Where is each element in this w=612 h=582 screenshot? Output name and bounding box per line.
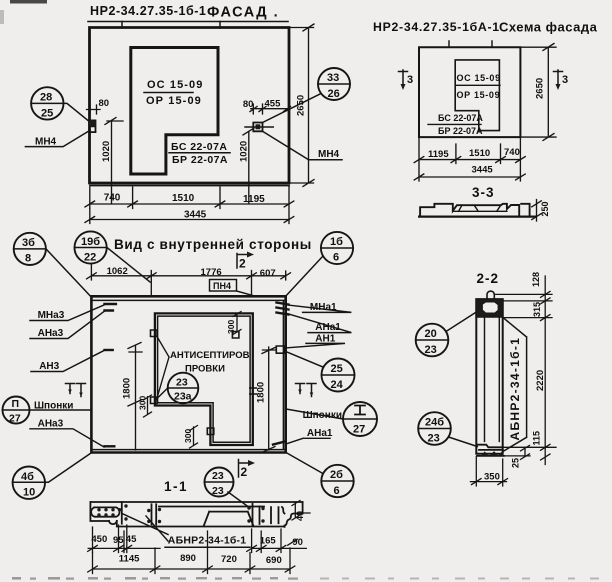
svg-text:6: 6 — [333, 252, 339, 264]
svg-text:23а: 23а — [174, 391, 192, 403]
svg-text:28: 28 — [40, 92, 52, 104]
svg-text:1020: 1020 — [239, 141, 250, 162]
svg-text:ОС 15-09: ОС 15-09 — [457, 73, 501, 83]
svg-text:24б: 24б — [425, 417, 444, 429]
svg-text:Вид с внутренней стороны: Вид с внутренней стороны — [114, 237, 312, 252]
svg-text:45: 45 — [126, 534, 137, 545]
svg-text:3б: 3б — [22, 237, 35, 249]
svg-text:350: 350 — [484, 472, 500, 483]
svg-text:10: 10 — [23, 487, 35, 499]
svg-text:27: 27 — [9, 413, 21, 425]
svg-text:607: 607 — [260, 268, 276, 279]
svg-text:19б: 19б — [81, 236, 100, 248]
svg-text:740: 740 — [504, 147, 520, 158]
svg-text:80: 80 — [99, 98, 110, 109]
svg-text:22: 22 — [84, 252, 96, 264]
svg-text:1145: 1145 — [119, 554, 140, 565]
svg-text:АНа3: АНа3 — [38, 419, 64, 430]
svg-text:8: 8 — [25, 253, 31, 265]
svg-text:Схема фасада: Схема фасада — [499, 20, 598, 35]
svg-text:300: 300 — [226, 320, 236, 334]
svg-text:4б: 4б — [21, 471, 34, 483]
svg-text:Шпонки: Шпонки — [34, 401, 73, 412]
svg-text:455: 455 — [265, 99, 282, 110]
svg-text:23: 23 — [212, 470, 224, 482]
svg-text:2-2: 2-2 — [477, 271, 500, 286]
svg-text:ПН4: ПН4 — [213, 281, 231, 291]
svg-text:3445: 3445 — [472, 165, 494, 176]
svg-text:25: 25 — [41, 108, 53, 120]
svg-text:ФАСАД .: ФАСАД . — [207, 5, 279, 21]
svg-text:6: 6 — [334, 485, 340, 497]
svg-text:23: 23 — [425, 344, 437, 356]
svg-text:АНТИСЕПТИРОВ: АНТИСЕПТИРОВ — [170, 350, 250, 361]
svg-text:1-1: 1-1 — [164, 479, 188, 494]
svg-text:АНа1: АНа1 — [307, 428, 333, 439]
svg-text:27: 27 — [353, 424, 365, 436]
svg-text:ОР 15-09: ОР 15-09 — [457, 90, 501, 100]
svg-text:1800: 1800 — [256, 382, 267, 403]
svg-text:2: 2 — [239, 257, 246, 271]
svg-text:890: 890 — [180, 553, 196, 564]
svg-text:300: 300 — [183, 429, 193, 443]
svg-text:33: 33 — [327, 72, 339, 84]
svg-text:ОС 15-09: ОС 15-09 — [147, 79, 204, 91]
svg-text:115: 115 — [532, 431, 542, 446]
svg-text:НР2-34.27.35-1б-1: НР2-34.27.35-1б-1 — [90, 4, 206, 18]
svg-text:2220: 2220 — [535, 370, 546, 391]
svg-text:128: 128 — [531, 272, 541, 287]
svg-text:ОР 15-09: ОР 15-09 — [146, 95, 202, 107]
svg-text:МНа3: МНа3 — [38, 310, 65, 321]
svg-text:1510: 1510 — [469, 148, 490, 159]
svg-text:БС 22-07А: БС 22-07А — [438, 113, 483, 123]
svg-text:ПРОВКИ: ПРОВКИ — [185, 364, 225, 375]
svg-text:АНа3: АНа3 — [38, 328, 64, 339]
svg-text:23: 23 — [176, 377, 188, 389]
svg-text:БС 22-07А: БС 22-07А — [171, 141, 227, 153]
svg-text:3: 3 — [407, 74, 413, 86]
svg-text:690: 690 — [266, 555, 282, 566]
svg-text:25: 25 — [511, 458, 521, 468]
svg-text:20: 20 — [425, 328, 437, 340]
svg-text:1800: 1800 — [122, 378, 133, 399]
svg-text:НР2-34.27.35-1бА-1: НР2-34.27.35-1бА-1 — [373, 20, 500, 34]
svg-text:АБНР2-34-1б-1: АБНР2-34-1б-1 — [508, 337, 522, 441]
svg-text:БР 22-07А: БР 22-07А — [172, 154, 228, 166]
svg-text:720: 720 — [221, 554, 237, 565]
svg-text:26: 26 — [328, 88, 340, 100]
svg-text:МН4: МН4 — [318, 149, 340, 160]
svg-text:3: 3 — [562, 74, 568, 86]
svg-text:2б: 2б — [330, 469, 343, 481]
svg-text:1510: 1510 — [172, 193, 195, 204]
svg-text:АН3: АН3 — [39, 361, 59, 372]
svg-text:2: 2 — [241, 465, 248, 479]
svg-text:24: 24 — [331, 379, 344, 391]
svg-text:450: 450 — [91, 534, 107, 545]
svg-text:165: 165 — [260, 536, 277, 547]
svg-text:1б: 1б — [330, 236, 343, 248]
svg-text:740: 740 — [104, 193, 121, 204]
svg-text:1195: 1195 — [428, 149, 449, 160]
svg-text:П: П — [12, 398, 20, 410]
svg-text:3-3: 3-3 — [472, 185, 495, 200]
svg-text:БР 22-07А: БР 22-07А — [438, 126, 483, 136]
svg-text:2650: 2650 — [535, 78, 546, 99]
svg-text:23: 23 — [428, 433, 440, 445]
svg-text:1020: 1020 — [101, 141, 112, 162]
svg-text:25: 25 — [331, 363, 343, 375]
svg-text:23: 23 — [212, 485, 224, 497]
